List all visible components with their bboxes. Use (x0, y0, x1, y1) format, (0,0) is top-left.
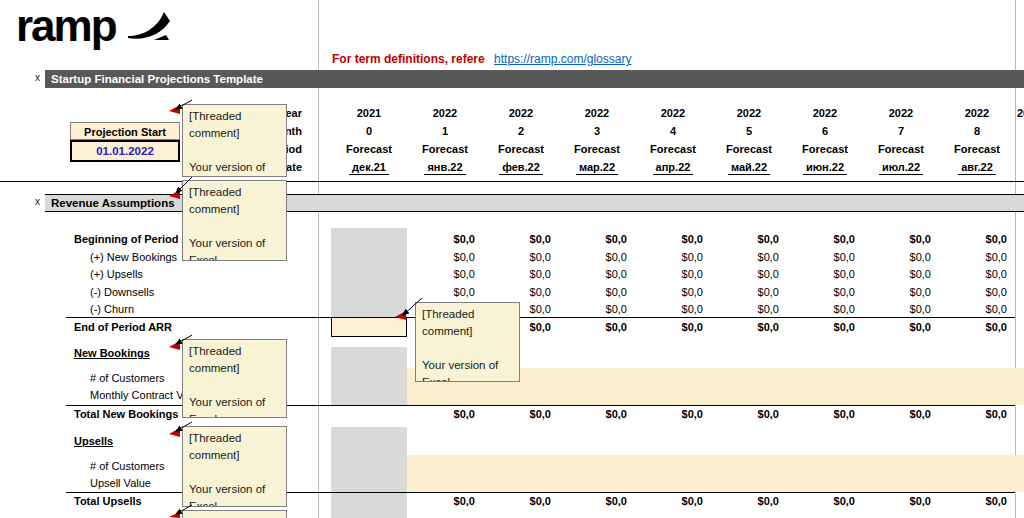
threaded-comment-end-of-period[interactable]: [Threaded comment] Your version of Excel… (415, 302, 520, 382)
value-cell[interactable]: $0,0 (787, 266, 863, 283)
value-cell[interactable]: $0,0 (939, 266, 1015, 283)
value-cell[interactable]: $0,0 (635, 406, 711, 423)
value-cell[interactable]: $0,0 (863, 493, 939, 510)
comment-spacer (422, 340, 513, 357)
comment-line: Excel... (189, 252, 280, 261)
value-cell[interactable]: $0,0 (863, 249, 939, 266)
comment-line: [Threaded comment] (189, 430, 280, 464)
value-cell[interactable]: $0,0 (863, 406, 939, 423)
row-label[interactable]: Upsell Value (90, 475, 151, 492)
comment-line: Excel... (422, 374, 513, 382)
value-cell[interactable]: $0,0 (711, 231, 787, 248)
row-values: $0,0$0,0$0,0$0,0$0,0$0,0$0,0$0,0 (407, 284, 1015, 301)
value-cell[interactable]: $0,0 (787, 301, 863, 318)
value-cell[interactable]: $0,0 (787, 493, 863, 510)
column-date: июн.22 (787, 158, 863, 176)
value-cell[interactable]: $0,0 (559, 301, 635, 318)
value-cell[interactable]: $0,0 (787, 406, 863, 423)
row-label[interactable]: New Bookings (74, 345, 150, 362)
value-cell[interactable]: $0,0 (483, 266, 559, 283)
period-column-header[interactable]: 20221Forecastянв.22 (407, 104, 483, 176)
value-cell[interactable]: $0,0 (483, 231, 559, 248)
column-month: 6 (787, 122, 863, 140)
comment-line: Excel... (189, 411, 280, 418)
row-total-new-bookings: Total New Bookings $0,0$0,0$0,0$0,0$0,0$… (0, 406, 1024, 423)
threaded-comment-revenue-assumptions[interactable]: [Threaded comment] Your version of Excel… (182, 180, 287, 261)
column-year: 2022 (863, 104, 939, 122)
row-values: $0,0$0,0$0,0$0,0$0,0$0,0$0,0$0,0 (407, 493, 1015, 510)
column-date: янв.22 (407, 158, 483, 176)
column-period: Forecast (559, 140, 635, 158)
period-column-header[interactable]: 20210Forecastдек.21 (331, 104, 407, 176)
row-downsells: (-) Downsells $0,0$0,0$0,0$0,0$0,0$0,0$0… (0, 284, 1024, 301)
value-cell[interactable]: $0,0 (635, 301, 711, 318)
value-cell[interactable]: $0,0 (787, 249, 863, 266)
spreadsheet-canvas: ramp For term definitions, refere https:… (0, 0, 1024, 518)
column-period: Forecast (331, 140, 407, 158)
period-column-header[interactable]: 20226Forecastиюн.22 (787, 104, 863, 176)
column-month: 3 (559, 122, 635, 140)
column-month: 1 (407, 122, 483, 140)
row-up-value: Upsell Value (0, 475, 1024, 492)
value-cell[interactable]: $0,0 (787, 284, 863, 301)
value-cell[interactable]: $0,0 (939, 406, 1015, 423)
value-cell[interactable]: $0,0 (483, 284, 559, 301)
value-cell[interactable]: $0,0 (863, 319, 939, 336)
row-values: $0,0$0,0$0,0$0,0$0,0$0,0$0,0$0,0 (407, 249, 1015, 266)
value-cell[interactable]: $0,0 (635, 284, 711, 301)
comment-indicator (169, 512, 180, 518)
column-date: май.22 (711, 158, 787, 176)
threaded-comment-new-bookings[interactable]: [Threaded comment] Your version of Excel… (182, 339, 287, 418)
column-year: 2022 (787, 104, 863, 122)
value-cell[interactable]: $0,0 (635, 249, 711, 266)
column-year: 2022 (559, 104, 635, 122)
column-year: 2021 (331, 104, 407, 122)
comment-line: Your version of (422, 357, 513, 374)
value-cell[interactable]: $0,0 (407, 284, 483, 301)
value-cell[interactable]: $0,0 (939, 249, 1015, 266)
value-cell[interactable]: $0,0 (483, 406, 559, 423)
column-period: Forecast (863, 140, 939, 158)
value-cell[interactable]: $0,0 (407, 266, 483, 283)
title-bar[interactable]: Startup Financial Projections Template (45, 70, 1024, 88)
column-month: 4 (635, 122, 711, 140)
value-cell[interactable]: $0,0 (863, 284, 939, 301)
next-column-year-fragment: 2022 (1017, 104, 1024, 122)
row-label[interactable]: End of Period ARR (74, 319, 172, 336)
column-period: Forecast (407, 140, 483, 158)
column-date: фев.22 (483, 158, 559, 176)
comment-line: [Threaded comment] (189, 343, 280, 377)
comment-spacer (189, 218, 280, 235)
value-cell[interactable]: $0,0 (559, 284, 635, 301)
outline-collapse-top[interactable]: x (35, 72, 40, 83)
row-total-upsells: Total Upsells $0,0$0,0$0,0$0,0$0,0$0,0$0… (0, 493, 1024, 510)
row-label[interactable]: (-) Churn (90, 301, 134, 318)
column-date: апр.22 (635, 158, 711, 176)
value-cell[interactable]: $0,0 (635, 231, 711, 248)
ramp-logo: ramp (16, 2, 172, 50)
column-date: мар.22 (559, 158, 635, 176)
notice-text: For term definitions, refere (332, 52, 485, 66)
comment-line: Your version of (189, 159, 280, 176)
comment-line: [Threaded comment] (422, 306, 513, 340)
glossary-link[interactable]: https://ramp.com/glossary (494, 52, 631, 66)
value-cell[interactable]: $0,0 (939, 301, 1015, 318)
rule-end-of-period (66, 317, 1015, 318)
row-upsells: (+) Upsells $0,0$0,0$0,0$0,0$0,0$0,0$0,0… (0, 266, 1024, 283)
value-cell[interactable]: $0,0 (635, 493, 711, 510)
comment-line: Your version of (189, 235, 280, 252)
value-cell[interactable]: $0,0 (711, 319, 787, 336)
period-column-header[interactable]: 20225Forecastмай.22 (711, 104, 787, 176)
value-cell[interactable]: $0,0 (787, 231, 863, 248)
threaded-comment-upsells[interactable]: [Threaded comment] Your version of Excel… (182, 426, 287, 507)
row-label[interactable]: # of Customers (90, 458, 165, 475)
comment-line: Excel... (189, 176, 280, 177)
row-label[interactable]: # of Customers (90, 370, 165, 387)
value-cell[interactable]: $0,0 (711, 266, 787, 283)
threaded-comment-projection-start[interactable]: [Threaded comment] Your version of Excel… (182, 104, 287, 177)
column-date: авг.22 (939, 158, 1015, 176)
value-cell[interactable]: $0,0 (863, 231, 939, 248)
column-period: Forecast (483, 140, 559, 158)
row-nb-contract-value: Monthly Contract Value (0, 387, 1024, 404)
outline-collapse-section[interactable]: x (35, 196, 40, 207)
row-up-customers: # of Customers (0, 458, 1024, 475)
value-cell[interactable]: $0,0 (711, 301, 787, 318)
row-label[interactable]: Upsells (74, 433, 113, 450)
column-year: 2022 (711, 104, 787, 122)
value-cell[interactable]: $0,0 (559, 266, 635, 283)
column-year: 2022 (407, 104, 483, 122)
value-cell[interactable]: $0,0 (711, 406, 787, 423)
comment-spacer (189, 142, 280, 159)
period-column-header[interactable]: 20222Forecastфев.22 (483, 104, 559, 176)
comment-line: [Threaded comment] (189, 108, 280, 142)
projection-start-date-cell[interactable]: 01.01.2022 (70, 140, 180, 162)
row-beginning-arr: Beginning of Period ARR $0,0$0,0$0,0$0,0… (0, 231, 1024, 248)
column-date: дек.21 (331, 158, 407, 176)
ramp-swoosh-icon (126, 9, 172, 43)
row-values: $0,0$0,0$0,0$0,0$0,0$0,0$0,0$0,0 (407, 266, 1015, 283)
value-cell[interactable]: $0,0 (559, 319, 635, 336)
value-cell[interactable]: $0,0 (559, 493, 635, 510)
column-month: 2 (483, 122, 559, 140)
header-rule (0, 181, 1024, 182)
value-cell[interactable]: $0,0 (711, 249, 787, 266)
ramp-logo-text: ramp (16, 2, 116, 50)
threaded-comment-bottom[interactable]: [Threaded comment] (182, 510, 287, 518)
value-cell[interactable]: $0,0 (863, 301, 939, 318)
value-cell[interactable]: $0,0 (559, 249, 635, 266)
column-year: 2022 (483, 104, 559, 122)
value-cell[interactable]: $0,0 (483, 493, 559, 510)
value-cell[interactable]: $0,0 (635, 319, 711, 336)
value-cell[interactable]: $0,0 (559, 406, 635, 423)
value-cell[interactable]: $0,0 (559, 231, 635, 248)
value-cell[interactable]: $0,0 (407, 231, 483, 248)
row-values: $0,0$0,0$0,0$0,0$0,0$0,0$0,0$0,0 (407, 406, 1015, 423)
column-period: Forecast (711, 140, 787, 158)
column-period: Forecast (787, 140, 863, 158)
row-label[interactable]: (+) New Bookings (90, 249, 177, 266)
heading-upsells: Upsells (0, 433, 1024, 450)
column-period: Forecast (939, 140, 1015, 158)
value-cell[interactable]: $0,0 (407, 406, 483, 423)
column-date: июл.22 (863, 158, 939, 176)
column-month: 5 (711, 122, 787, 140)
column-month: 7 (863, 122, 939, 140)
value-cell[interactable]: $0,0 (635, 266, 711, 283)
value-cell[interactable]: $0,0 (939, 319, 1015, 336)
period-column-header[interactable]: 20228Forecastавг.22 (939, 104, 1015, 176)
row-label[interactable]: (-) Downsells (90, 284, 154, 301)
value-cell[interactable]: $0,0 (939, 231, 1015, 248)
comment-line: Your version of (189, 394, 280, 411)
column-period: Forecast (635, 140, 711, 158)
comment-spacer (189, 377, 280, 394)
value-cell[interactable]: $0,0 (863, 266, 939, 283)
value-cell[interactable]: $0,0 (939, 493, 1015, 510)
value-cell[interactable]: $0,0 (483, 249, 559, 266)
period-header-columns: 20210Forecastдек.2120221Forecastянв.2220… (331, 104, 1015, 176)
value-cell[interactable]: $0,0 (711, 493, 787, 510)
column-year: 2022 (939, 104, 1015, 122)
row-label[interactable]: (+) Upsells (90, 266, 143, 283)
value-cell[interactable]: $0,0 (407, 493, 483, 510)
row-label[interactable]: Total New Bookings (74, 406, 178, 423)
comment-line: Excel... (189, 498, 280, 507)
column-year: 2022 (635, 104, 711, 122)
comment-line: [Threaded comment] (189, 184, 280, 218)
period-column-header[interactable]: 20223Forecastмар.22 (559, 104, 635, 176)
row-label[interactable]: Total Upsells (74, 493, 142, 510)
comment-spacer (189, 464, 280, 481)
value-cell[interactable]: $0,0 (407, 249, 483, 266)
row-values: $0,0$0,0$0,0$0,0$0,0$0,0$0,0$0,0 (407, 231, 1015, 248)
row-new-bookings: (+) New Bookings $0,0$0,0$0,0$0,0$0,0$0,… (0, 249, 1024, 266)
value-cell[interactable]: $0,0 (939, 284, 1015, 301)
comment-line: [Threaded comment] (189, 514, 280, 518)
term-definitions-notice: For term definitions, refere https://ram… (332, 52, 631, 66)
period-column-header[interactable]: 20227Forecastиюл.22 (863, 104, 939, 176)
value-cell[interactable]: $0,0 (711, 284, 787, 301)
period-column-header[interactable]: 20224Forecastапр.22 (635, 104, 711, 176)
comment-line: Your version of (189, 481, 280, 498)
value-cell[interactable]: $0,0 (787, 319, 863, 336)
column-month: 0 (331, 122, 407, 140)
projection-start-label[interactable]: Projection Start (70, 122, 180, 140)
column-month: 8 (939, 122, 1015, 140)
